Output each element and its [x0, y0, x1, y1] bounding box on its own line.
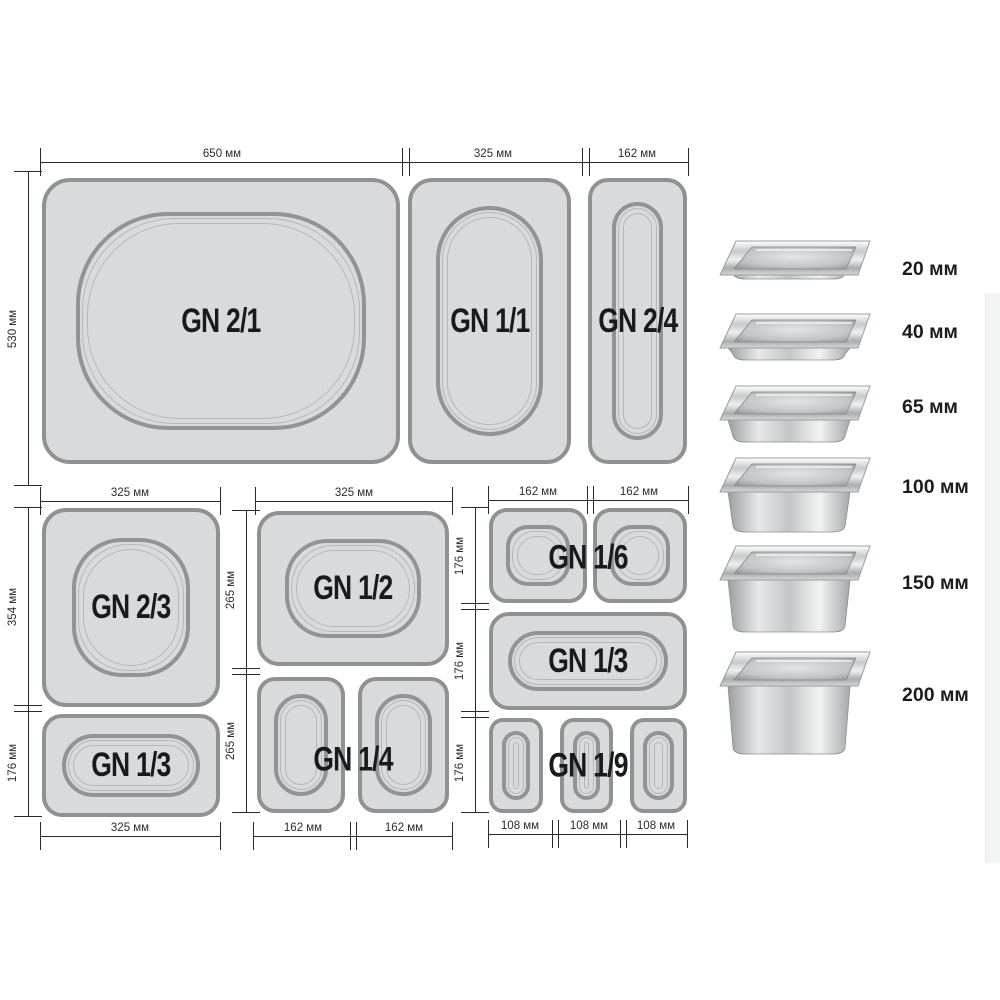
pan-photo-40mm	[714, 308, 874, 375]
pan-label: GN 2/1	[181, 302, 260, 341]
pan-photo-20mm	[714, 235, 874, 294]
pan-photo-65mm	[714, 380, 874, 457]
pan-gn-2-3: GN 2/3	[42, 508, 220, 707]
dim-label: 176 мм	[7, 744, 19, 782]
pan-label-gn-1-9: GN 1/9	[548, 747, 627, 786]
pan-gn-1-3-left: GN 1/3	[42, 714, 220, 817]
pan-gn-1-3-right: GN 1/3	[489, 612, 687, 710]
dim-label: 176 мм	[454, 642, 466, 680]
depth-label: 150 мм	[902, 571, 969, 595]
pan-gn-1-9-a	[489, 718, 543, 813]
pan-label: GN 1/2	[313, 569, 392, 608]
pan-well	[502, 731, 530, 800]
dim-label: 162 мм	[385, 822, 423, 834]
depth-label: 100 мм	[902, 475, 969, 499]
pan-photo-100mm	[714, 452, 874, 547]
depth-label: 65 мм	[902, 395, 958, 419]
pan-gn-2-4: GN 2/4	[588, 178, 687, 464]
dim-label: 325 мм	[111, 822, 149, 834]
pan-label-gn-1-6: GN 1/6	[548, 539, 627, 578]
pan-label: GN 1/3	[91, 746, 170, 785]
dim-label: 108 мм	[501, 820, 539, 832]
depth-label: 20 мм	[902, 257, 958, 281]
pan-label-gn-1-4: GN 1/4	[313, 741, 392, 780]
dim-label: 325 мм	[335, 487, 373, 499]
pan-label: GN 1/1	[450, 302, 529, 341]
pan-gn-1-1: GN 1/1	[408, 178, 571, 464]
dim-label: 162 мм	[519, 486, 557, 498]
dim-label: 176 мм	[454, 537, 466, 575]
dim-label: 650 мм	[203, 148, 241, 160]
pan-well	[643, 731, 674, 800]
dim-label: 354 мм	[7, 588, 19, 626]
pan-photo-200mm	[714, 646, 874, 769]
dim-label: 265 мм	[225, 722, 237, 760]
dim-label: 162 мм	[620, 486, 658, 498]
pan-gn-2-1: GN 2/1	[42, 178, 400, 464]
dim-label: 325 мм	[474, 148, 512, 160]
dim-label: 530 мм	[7, 310, 19, 348]
depth-label: 200 мм	[902, 683, 969, 707]
dim-label: 162 мм	[284, 822, 322, 834]
pan-gn-1-2: GN 1/2	[257, 511, 449, 666]
pan-photo-150mm	[714, 540, 874, 647]
depth-label: 40 мм	[902, 320, 958, 344]
pan-label: GN 2/4	[598, 302, 677, 341]
pan-label: GN 2/3	[91, 588, 170, 627]
dim-label: 162 мм	[618, 148, 656, 160]
pan-gn-1-9-c	[630, 718, 687, 813]
dim-label: 108 мм	[637, 820, 675, 832]
dim-label: 265 мм	[225, 571, 237, 609]
dim-label: 108 мм	[570, 820, 608, 832]
photo-edge-strip	[985, 293, 1000, 863]
gastronorm-size-diagram: { "dims": { "top": { "w1": "650 мм", "w2…	[0, 0, 1000, 1000]
pan-label: GN 1/3	[548, 642, 627, 681]
dim-label: 176 мм	[454, 744, 466, 782]
dim-label: 325 мм	[111, 487, 149, 499]
